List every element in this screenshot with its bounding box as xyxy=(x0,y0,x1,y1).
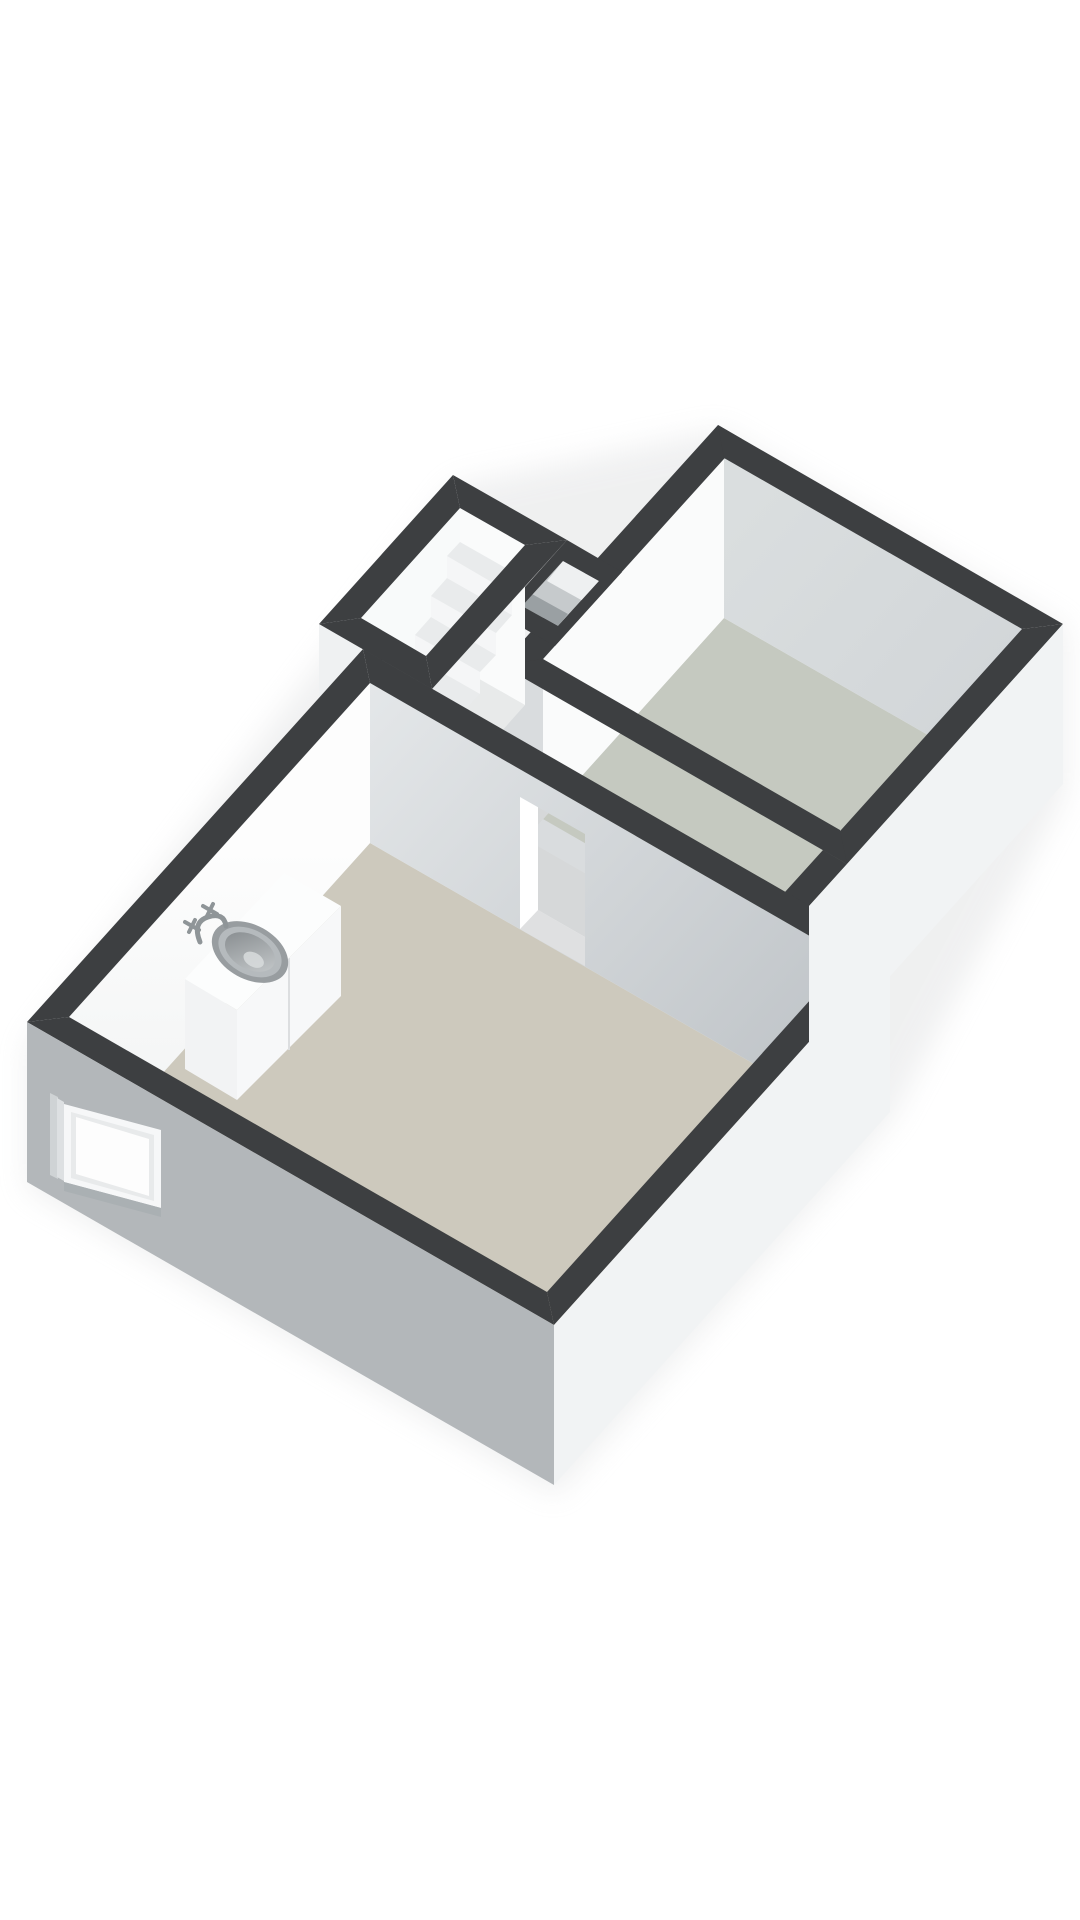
window-reveal-line xyxy=(50,1093,58,1179)
floorplan-canvas xyxy=(0,0,1080,1920)
window-reveal-line xyxy=(57,1098,64,1181)
floorplan-3d-render xyxy=(0,0,1080,1920)
